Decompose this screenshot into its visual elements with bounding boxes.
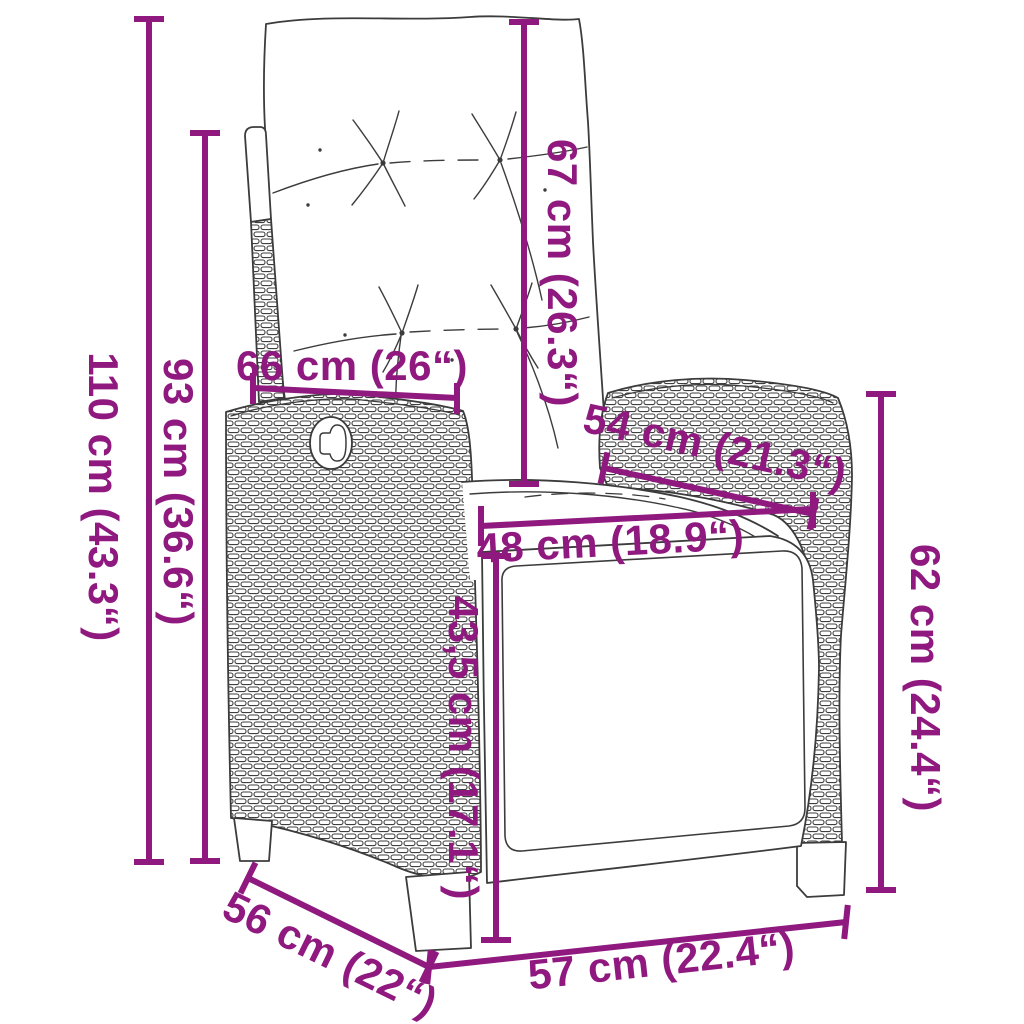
dimension-label-back-cushion-height: 67 cm (26.3“) (539, 139, 586, 407)
dimension-label-footrest-height: 43,5 cm (17.1“) (440, 596, 487, 900)
dimension-diagram: 110 cm (43.3“) 93 cm (36.6“) 67 cm (26.3… (0, 0, 1024, 1024)
dimension-label-base-width: 57 cm (22.4“) (526, 923, 797, 999)
chair-dimension-drawing: 110 cm (43.3“) 93 cm (36.6“) 67 cm (26.3… (0, 0, 1024, 1024)
right-leg (797, 842, 846, 897)
dimension-label-total-height: 110 cm (43.3“) (80, 352, 127, 642)
back-left-leg (234, 818, 272, 861)
footrest-panel (482, 536, 819, 883)
dimension-label-backrest-width: 66 cm (26“) (236, 342, 468, 389)
back-frame-post-top (245, 127, 271, 222)
dimension-label-backrest-height: 93 cm (36.6“) (155, 358, 202, 626)
dimension-line-armrest-height (866, 394, 896, 890)
dimension-label-armrest-height: 62 cm (24.4“) (902, 544, 949, 812)
